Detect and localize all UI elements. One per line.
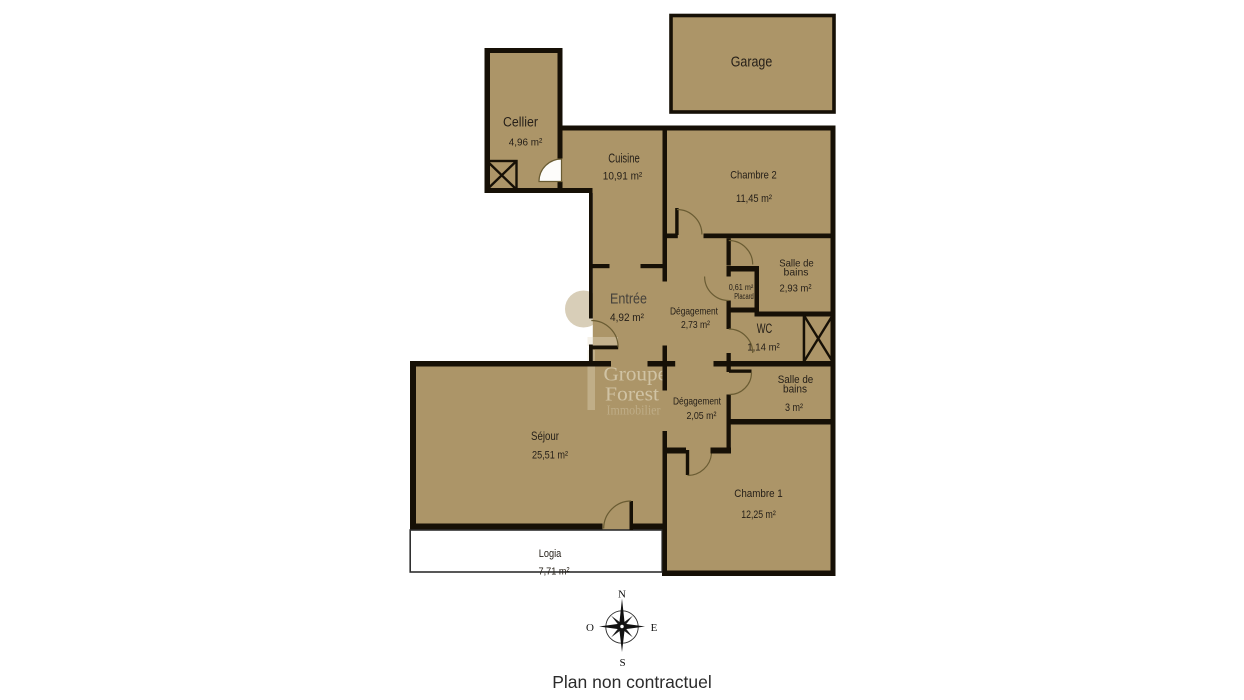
svg-text:2,73 m²: 2,73 m² (681, 320, 711, 331)
svg-text:11,45 m²: 11,45 m² (736, 193, 772, 205)
svg-text:S: S (619, 657, 625, 669)
svg-text:E: E (651, 622, 658, 634)
svg-text:10,91 m²: 10,91 m² (603, 171, 643, 183)
svg-text:Cellier: Cellier (503, 115, 538, 130)
svg-text:2,05 m²: 2,05 m² (687, 410, 717, 422)
svg-text:1,14 m²: 1,14 m² (747, 342, 780, 354)
svg-text:bains: bains (784, 267, 809, 279)
svg-text:7,71 m²: 7,71 m² (539, 566, 570, 578)
svg-text:Logia: Logia (539, 548, 562, 560)
svg-text:Placard: Placard (734, 292, 754, 301)
svg-text:Groupe: Groupe (604, 364, 668, 386)
svg-text:3 m²: 3 m² (785, 402, 803, 414)
svg-text:Séjour: Séjour (531, 429, 559, 443)
svg-text:Forest: Forest (605, 384, 659, 406)
svg-text:N: N (618, 589, 626, 601)
svg-text:Dégagement: Dégagement (673, 396, 721, 408)
svg-text:O: O (586, 622, 594, 634)
svg-text:Dégagement: Dégagement (670, 306, 718, 318)
svg-text:Cuisine: Cuisine (608, 152, 640, 166)
svg-text:4,96 m²: 4,96 m² (509, 137, 543, 149)
svg-text:Garage: Garage (731, 54, 773, 71)
svg-text:0,61 m²: 0,61 m² (729, 283, 754, 292)
svg-text:Entrée: Entrée (610, 292, 647, 308)
svg-text:WC: WC (757, 321, 773, 336)
svg-text:2,93 m²: 2,93 m² (780, 283, 812, 295)
svg-text:12,25 m²: 12,25 m² (741, 509, 776, 521)
svg-text:Chambre 1: Chambre 1 (734, 488, 783, 500)
svg-text:4,92 m²: 4,92 m² (610, 312, 644, 324)
svg-text:25,51 m²: 25,51 m² (532, 450, 568, 462)
svg-text:Plan non contractuel: Plan non contractuel (552, 672, 712, 692)
svg-text:Chambre 2: Chambre 2 (730, 170, 777, 182)
svg-text:Immobilier: Immobilier (607, 404, 661, 419)
svg-text:bains: bains (783, 384, 807, 396)
